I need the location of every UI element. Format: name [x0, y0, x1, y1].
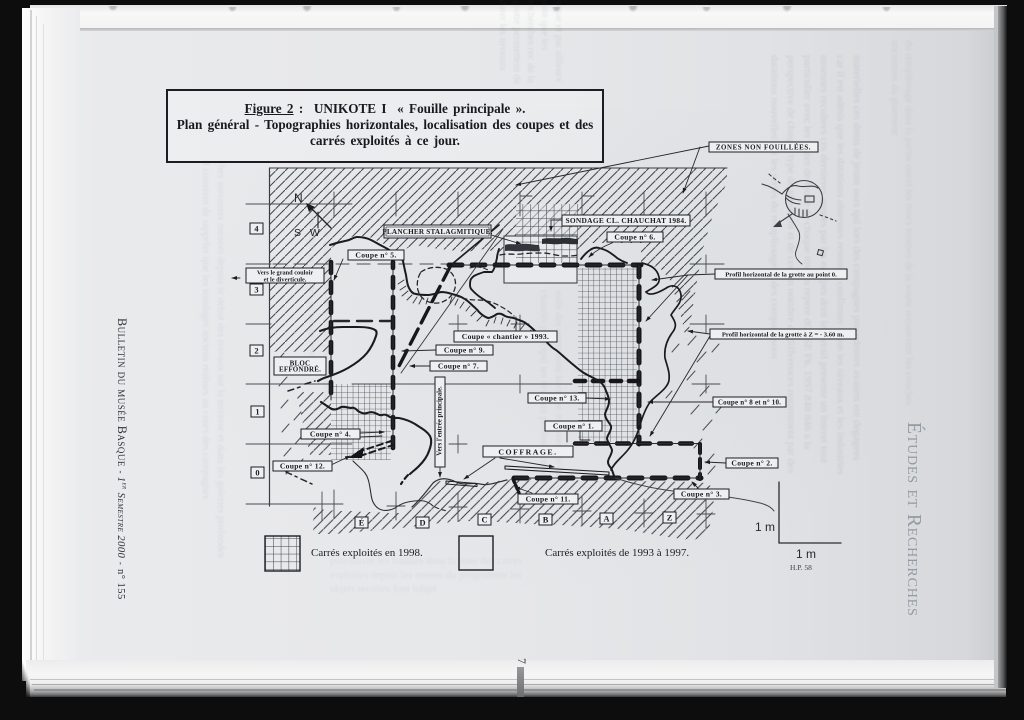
svg-text:C: C — [481, 516, 487, 525]
svg-text:A: A — [603, 515, 609, 524]
svg-text:ZONES NON FOUILLÉES.: ZONES NON FOUILLÉES. — [716, 144, 811, 152]
svg-text:Coupe n° 1.: Coupe n° 1. — [553, 422, 594, 431]
svg-text:B: B — [543, 516, 549, 525]
svg-text:Coupe n° 12.: Coupe n° 12. — [280, 462, 325, 471]
svg-text:Coupe « chantier » 1993.: Coupe « chantier » 1993. — [462, 332, 549, 341]
svg-text:D: D — [419, 519, 425, 528]
svg-text:1: 1 — [255, 408, 259, 417]
svg-text:Coupe n° 3.: Coupe n° 3. — [681, 490, 722, 499]
svg-text:Profil horizontal de la grotte: Profil horizontal de la grotte au point … — [725, 271, 837, 278]
svg-text:1 m: 1 m — [796, 547, 816, 561]
svg-text:H.P. 58: H.P. 58 — [790, 563, 812, 572]
svg-text:0: 0 — [255, 469, 259, 478]
svg-text:Coupe n° 2.: Coupe n° 2. — [731, 459, 772, 468]
svg-text:SONDAGE CL. CHAUCHAT 1984.: SONDAGE CL. CHAUCHAT 1984. — [565, 216, 686, 225]
svg-text:Coupe n° 9.: Coupe n° 9. — [444, 346, 485, 355]
svg-text:Coupe n° 13.: Coupe n° 13. — [534, 394, 579, 403]
svg-text:EFFONDRÉ.: EFFONDRÉ. — [279, 365, 321, 373]
svg-text:Profil horizontal de la grotte: Profil horizontal de la grotte à Z = - 3… — [722, 331, 845, 338]
svg-text:2: 2 — [254, 347, 258, 356]
svg-text:Z: Z — [667, 514, 673, 523]
svg-text:3: 3 — [254, 286, 258, 295]
svg-text:Coupe n° 5.: Coupe n° 5. — [355, 251, 396, 260]
svg-text:Coupe n° 8 et n° 10.: Coupe n° 8 et n° 10. — [718, 399, 781, 407]
svg-text:Vers l'entrée principale.: Vers l'entrée principale. — [437, 386, 444, 456]
svg-text:Coupe n° 11.: Coupe n° 11. — [526, 495, 571, 504]
svg-text:COFFRAGE.: COFFRAGE. — [498, 447, 557, 456]
svg-text:É: É — [359, 518, 365, 528]
svg-text:et le diverticule.: et le diverticule. — [264, 276, 307, 283]
svg-text:Coupe n° 4.: Coupe n° 4. — [310, 430, 351, 439]
svg-text:Coupe n° 6.: Coupe n° 6. — [614, 233, 655, 242]
svg-text:S W: S W — [294, 227, 323, 239]
svg-text:Carrés exploités de 1993 à 199: Carrés exploités de 1993 à 1997. — [545, 547, 689, 559]
svg-text:N: N — [294, 191, 303, 205]
svg-text:Carrés exploités en 1998.: Carrés exploités en 1998. — [311, 547, 423, 559]
svg-text:PLANCHER STALAGMITIQUE.: PLANCHER STALAGMITIQUE. — [382, 228, 492, 236]
svg-text:1 m: 1 m — [755, 520, 775, 534]
svg-text:Coupe n° 7.: Coupe n° 7. — [438, 362, 479, 371]
